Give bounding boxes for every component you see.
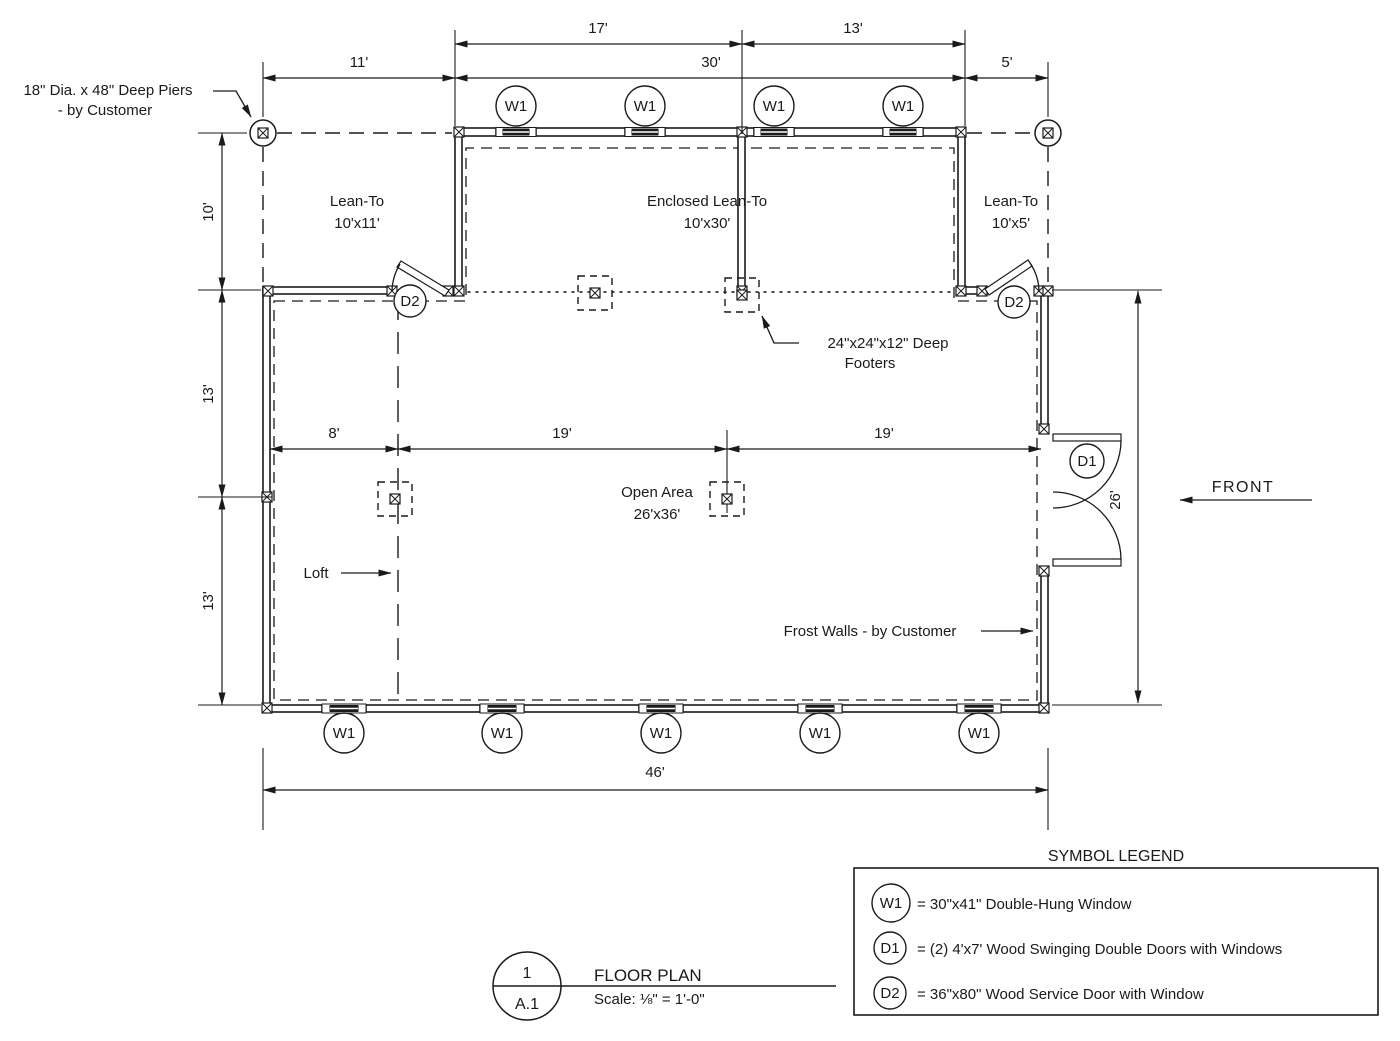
lean-to-wall-middle (738, 136, 745, 289)
annotation-frost-walls: Frost Walls - by Customer (784, 623, 1033, 640)
dim-label-19ft-right: 19' (874, 425, 894, 442)
window-tag-label: W1 (333, 725, 356, 742)
legend-d1-tag: D1 (880, 940, 899, 957)
window-tag: W1 (883, 86, 923, 126)
window-tag-label: W1 (650, 725, 673, 742)
symbol-legend: SYMBOL LEGEND W1 = 30"x41" Double-Hung W… (854, 848, 1378, 1015)
lean-to-top-seg (536, 128, 625, 136)
drawing-title: FLOOR PLAN (594, 966, 702, 985)
front-label: FRONT (1212, 479, 1275, 496)
dim-label-17ft: 17' (588, 20, 608, 37)
window-tags: W1 W1 W1 W1 W1 W1 W1 W1 W1 (324, 86, 999, 753)
wall-bottom-seg (842, 705, 957, 712)
dim-label-19ft-left: 19' (552, 425, 572, 442)
wall-right-upper (1041, 287, 1048, 433)
room-labels: Lean-To 10'x11' Enclosed Lean-To 10'x30'… (330, 193, 1038, 523)
door-tag-label: D1 (1077, 453, 1096, 470)
legend-row-w1: W1 = 30"x41" Double-Hung Window (872, 884, 1132, 922)
window-tag-label: W1 (634, 98, 657, 115)
footer-symbols (378, 276, 759, 516)
annotation-loft: Loft (303, 565, 391, 582)
dim-label-26ft: 26' (1107, 490, 1124, 510)
piers-leader-arrow (213, 91, 251, 117)
wall-bottom-seg (366, 705, 480, 712)
window-tag: W1 (625, 86, 665, 126)
drawing-scale: Scale: ⅛" = 1'-0" (594, 991, 705, 1008)
window-tag-label: W1 (892, 98, 915, 115)
lean-to-wall-right (958, 128, 965, 295)
dim-label-46ft: 46' (645, 764, 665, 781)
dim-label-13ft-top: 13' (843, 20, 863, 37)
window-tag: W1 (641, 713, 681, 753)
door-tag-label: D2 (400, 293, 419, 310)
footers-label-line1: 24"x24"x12" Deep (827, 335, 948, 352)
window-tag: W1 (959, 713, 999, 753)
window-symbol (754, 128, 794, 137)
window-symbol (625, 128, 665, 137)
door-d2-right: D2 (985, 260, 1039, 318)
footers-label-line2: Footers (845, 355, 896, 372)
wall-right-lower (1041, 567, 1048, 712)
window-tag-label: W1 (505, 98, 528, 115)
door-leaf (1053, 559, 1121, 566)
dim-label-5ft: 5' (1001, 54, 1012, 71)
dim-label-11ft: 11' (350, 54, 369, 71)
dim-label-13ft-lower: 13' (200, 591, 217, 611)
window-tag: W1 (482, 713, 522, 753)
dim-label-30ft: 30' (701, 54, 721, 71)
room-open-area-size: 26'x36' (634, 506, 681, 523)
annotation-piers: 18" Dia. x 48" Deep Piers - by Customer (23, 82, 251, 119)
dim-label-8ft: 8' (328, 425, 339, 442)
legend-title: SYMBOL LEGEND (1048, 848, 1184, 865)
window-tag: W1 (800, 713, 840, 753)
annotation-front: FRONT (1180, 479, 1312, 500)
window-symbol (322, 704, 366, 713)
dim-label-10ft: 10' (200, 202, 217, 222)
door-d2-left: D2 (392, 261, 449, 317)
detail-number: 1 (523, 965, 532, 982)
wall-bottom-seg (524, 705, 639, 712)
window-tag: W1 (496, 86, 536, 126)
legend-w1-desc: = 30"x41" Double-Hung Window (917, 896, 1132, 913)
floor-plan-drawing: D2 D2 D1 W1 W1 W1 W1 W1 W1 W1 W1 W1 (0, 0, 1400, 1036)
room-lean-to-right-size: 10'x5' (992, 215, 1030, 232)
room-lean-to-left-size: 10'x11' (334, 215, 380, 232)
room-enclosed-lean-to-name: Enclosed Lean-To (647, 193, 767, 210)
lean-to-top-seg (794, 128, 883, 136)
window-symbol (798, 704, 842, 713)
window-tag-label: W1 (763, 98, 786, 115)
piers-label-line1: 18" Dia. x 48" Deep Piers (23, 82, 192, 99)
frost-walls-label: Frost Walls - by Customer (784, 623, 957, 640)
window-symbol (639, 704, 683, 713)
legend-d2-desc: = 36"x80" Wood Service Door with Window (917, 986, 1204, 1003)
window-tag-label: W1 (491, 725, 514, 742)
room-lean-to-right-name: Lean-To (984, 193, 1038, 210)
window-tag: W1 (754, 86, 794, 126)
pier-symbol (1035, 120, 1061, 146)
frost-wall-dashed-line (274, 148, 1037, 700)
loft-label: Loft (303, 565, 329, 582)
door-leaf (1053, 434, 1121, 441)
wall-bottom-seg (683, 705, 798, 712)
footers-leader-arrow (762, 316, 799, 343)
lean-to-wall-left (455, 128, 462, 295)
legend-d2-tag: D2 (880, 985, 899, 1002)
window-symbol (883, 128, 923, 137)
annotation-footers: 24"x24"x12" Deep Footers (762, 316, 949, 372)
dimension-lines (222, 44, 1138, 790)
pier-symbol (250, 120, 276, 146)
window-symbol (496, 128, 536, 137)
legend-row-d1: D1 = (2) 4'x7' Wood Swinging Double Door… (874, 932, 1282, 964)
window-tag-label: W1 (968, 725, 991, 742)
door-tag-label: D2 (1004, 294, 1023, 311)
window-tag-label: W1 (809, 725, 832, 742)
wall-top-left (263, 287, 390, 294)
window-tag: W1 (324, 713, 364, 753)
legend-row-d2: D2 = 36"x80" Wood Service Door with Wind… (874, 977, 1204, 1009)
room-enclosed-lean-to-size: 10'x30' (684, 215, 731, 232)
room-open-area-name: Open Area (621, 484, 693, 501)
window-symbol (957, 704, 1001, 713)
piers-label-line2: - by Customer (58, 102, 152, 119)
window-symbol (480, 704, 524, 713)
floor-plan-sheet: D2 D2 D1 W1 W1 W1 W1 W1 W1 W1 W1 W1 (0, 0, 1400, 1036)
dim-label-13ft-upper: 13' (200, 384, 217, 404)
room-lean-to-left-name: Lean-To (330, 193, 384, 210)
sheet-reference: A.1 (515, 996, 539, 1013)
legend-d1-desc: = (2) 4'x7' Wood Swinging Double Doors w… (917, 941, 1282, 958)
title-block: 1 A.1 FLOOR PLAN Scale: ⅛" = 1'-0" (493, 952, 836, 1020)
legend-w1-tag: W1 (880, 895, 903, 912)
